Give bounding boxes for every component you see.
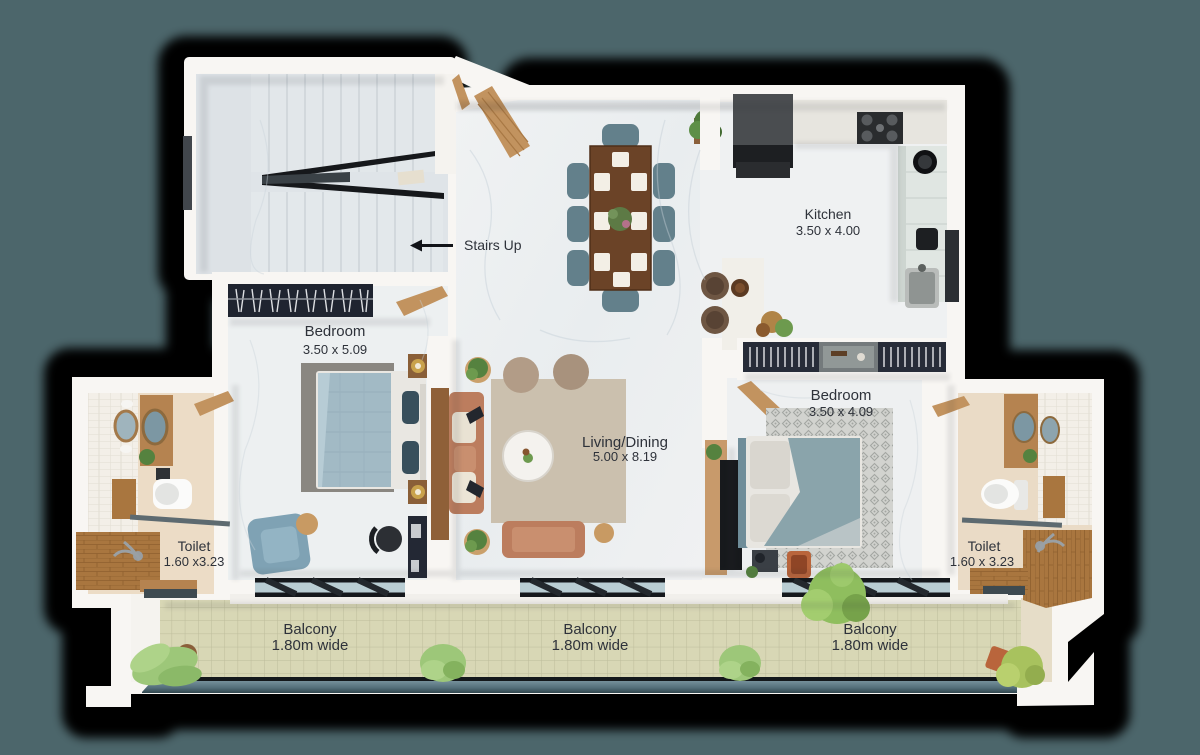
svg-text:Balcony: Balcony	[283, 621, 337, 638]
svg-text:1.80m wide: 1.80m wide	[832, 637, 909, 654]
svg-text:Stairs Up: Stairs Up	[464, 237, 522, 253]
svg-text:1.80m wide: 1.80m wide	[272, 637, 349, 654]
svg-text:5.00 x 8.19: 5.00 x 8.19	[593, 449, 657, 464]
svg-text:3.50 x 4.00: 3.50 x 4.00	[796, 223, 860, 238]
svg-text:3.50 x 4.09: 3.50 x 4.09	[809, 404, 873, 419]
svg-text:Balcony: Balcony	[843, 621, 897, 638]
svg-text:Toilet: Toilet	[178, 538, 211, 554]
svg-text:1.80m wide: 1.80m wide	[552, 637, 629, 654]
svg-text:Toilet: Toilet	[968, 538, 1001, 554]
svg-text:Bedroom: Bedroom	[305, 323, 366, 340]
svg-text:1.60 x3.23: 1.60 x3.23	[164, 554, 225, 569]
svg-text:Bedroom: Bedroom	[811, 387, 872, 404]
svg-text:1.60 x 3.23: 1.60 x 3.23	[950, 554, 1014, 569]
svg-text:3.50 x 5.09: 3.50 x 5.09	[303, 342, 367, 357]
svg-text:Kitchen: Kitchen	[805, 206, 852, 222]
svg-text:Balcony: Balcony	[563, 621, 617, 638]
